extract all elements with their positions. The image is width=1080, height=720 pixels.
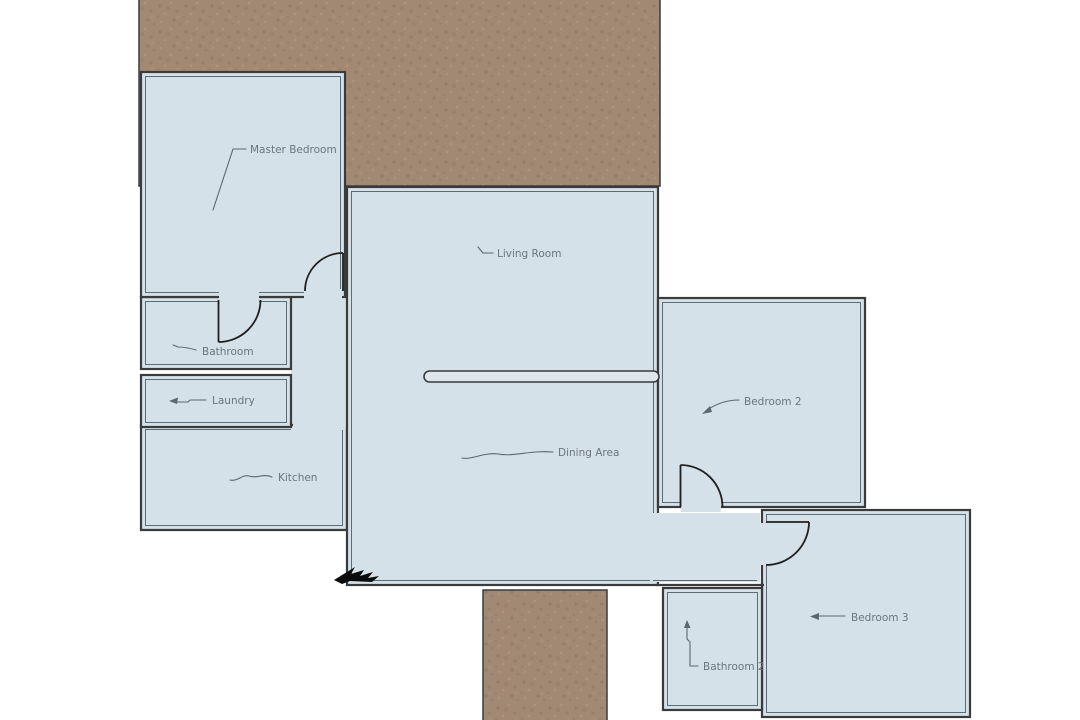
room-label-bedroom-3: Bedroom 3: [851, 612, 909, 624]
bedroom-2-door-opening: [681, 501, 721, 512]
hallway-strip: [291, 296, 349, 427]
room-label-bathroom: Bathroom: [202, 346, 254, 358]
room-bathroom: [141, 297, 291, 369]
room-label-dining-area: Dining Area: [558, 447, 619, 459]
bedroom-3-door-opening: [757, 523, 769, 565]
patio-area-bottom: [483, 590, 607, 720]
passage-area: [650, 513, 760, 582]
bathroom-door-opening: [219, 290, 259, 303]
room-living-dining: [347, 187, 658, 585]
room-bathroom-2: [663, 588, 762, 710]
room-label-master-bedroom: Master Bedroom: [250, 144, 337, 156]
room-label-kitchen: Kitchen: [278, 472, 317, 484]
master-bedroom-door-opening: [304, 289, 342, 302]
floor-plan-page: Master Bedroom Bathroom Laundry Kitchen …: [0, 0, 1080, 720]
room-label-bedroom-2: Bedroom 2: [744, 396, 802, 408]
partition-wall: [424, 371, 659, 382]
room-label-laundry: Laundry: [212, 395, 255, 407]
room-label-bathroom-2: Bathroom 2: [703, 661, 765, 673]
room-master-bedroom: [141, 72, 345, 297]
room-label-living-room: Living Room: [497, 248, 561, 260]
floor-plan-canvas: Master Bedroom Bathroom Laundry Kitchen …: [0, 0, 1080, 720]
